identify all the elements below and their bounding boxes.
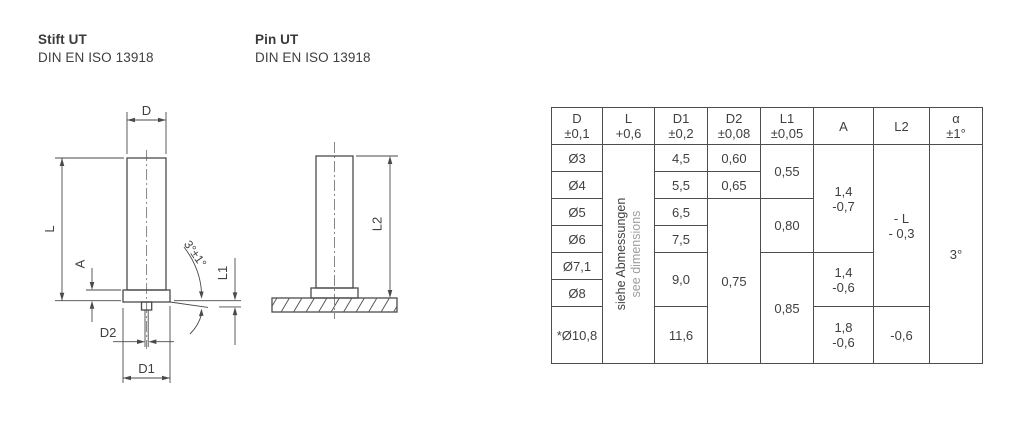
dimension-L: L (42, 158, 124, 301)
dimension-L2: L2 (356, 156, 398, 298)
dim-label-L1: L1 (215, 266, 230, 280)
cell-d2: 0,65 (708, 172, 761, 199)
cell-a: 1,4-0,6 (814, 253, 874, 307)
cell-d: *Ø10,8 (552, 307, 603, 364)
see-dimensions-note: siehe Abmessungen see dimensions (614, 198, 644, 311)
stud-welded-view-drawing: L2 (255, 130, 455, 340)
dim-label-angle: 3°±1° (181, 238, 210, 270)
cell-d2: 0,60 (708, 145, 761, 172)
cell-d: Ø4 (552, 172, 603, 199)
catalog-page: Stift UT DIN EN ISO 13918 Pin UT DIN EN … (0, 0, 1024, 438)
dim-label-D: D (142, 103, 151, 118)
dimension-L1: L1 (170, 258, 241, 345)
col-header-L2: L2 (874, 108, 930, 145)
cell-d: Ø5 (552, 199, 603, 226)
col-header-D2: D2±0,08 (708, 108, 761, 145)
cell-d: Ø7,1 (552, 253, 603, 280)
dimension-A: A (73, 259, 122, 322)
cell-d1: 9,0 (655, 253, 708, 307)
col-header-D1: D1±0,2 (655, 108, 708, 145)
cell-l2: -0,6 (874, 307, 930, 364)
standard-de: DIN EN ISO 13918 (38, 49, 154, 67)
cell-d2: 0,75 (708, 199, 761, 364)
dimension-D: D (127, 103, 166, 154)
table-row: Ø3 siehe Abmessungen see dimensions 4,5 … (552, 145, 983, 172)
cell-l1: 0,80 (761, 199, 814, 253)
title-block-german: Stift UT DIN EN ISO 13918 (38, 31, 154, 67)
cell-l1: 0,55 (761, 145, 814, 199)
col-header-L1: L1±0,05 (761, 108, 814, 145)
dim-label-A: A (73, 259, 88, 268)
col-header-A: A (814, 108, 874, 145)
dimension-D2: D2 (100, 325, 174, 344)
col-header-L: L+0,6 (603, 108, 655, 145)
col-header-D: D±0,1 (552, 108, 603, 145)
cell-l2: - L- 0,3 (874, 145, 930, 307)
dim-label-L2: L2 (370, 217, 385, 231)
cell-d1: 6,5 (655, 199, 708, 226)
dim-label-L: L (42, 225, 57, 232)
dim-label-D2: D2 (100, 325, 117, 340)
cell-a: 1,8-0,6 (814, 307, 874, 364)
title-block-english: Pin UT DIN EN ISO 13918 (255, 31, 371, 67)
cell-l-note: siehe Abmessungen see dimensions (603, 145, 655, 364)
dimensions-table: D±0,1 L+0,6 D1±0,2 D2±0,08 L1±0,05 A L2 … (551, 107, 983, 364)
cell-l1: 0,85 (761, 253, 814, 364)
cell-d: Ø3 (552, 145, 603, 172)
col-header-alpha: α±1° (930, 108, 983, 145)
standard-en: DIN EN ISO 13918 (255, 49, 371, 67)
stud-front-view-drawing: D L A D2 (40, 95, 250, 395)
plate-hatching (268, 297, 403, 313)
product-name-de: Stift UT (38, 31, 154, 49)
cell-d1: 5,5 (655, 172, 708, 199)
cell-d1: 11,6 (655, 307, 708, 364)
dim-label-D1: D1 (138, 361, 155, 376)
dimension-angle: 3°±1° (181, 238, 210, 334)
cell-a: 1,4-0,7 (814, 145, 874, 253)
cell-alpha: 3° (930, 145, 983, 364)
cell-d1: 7,5 (655, 226, 708, 253)
product-name-en: Pin UT (255, 31, 371, 49)
cell-d1: 4,5 (655, 145, 708, 172)
cell-d: Ø8 (552, 280, 603, 307)
cell-d: Ø6 (552, 226, 603, 253)
table-header-row: D±0,1 L+0,6 D1±0,2 D2±0,08 L1±0,05 A L2 … (552, 108, 983, 145)
